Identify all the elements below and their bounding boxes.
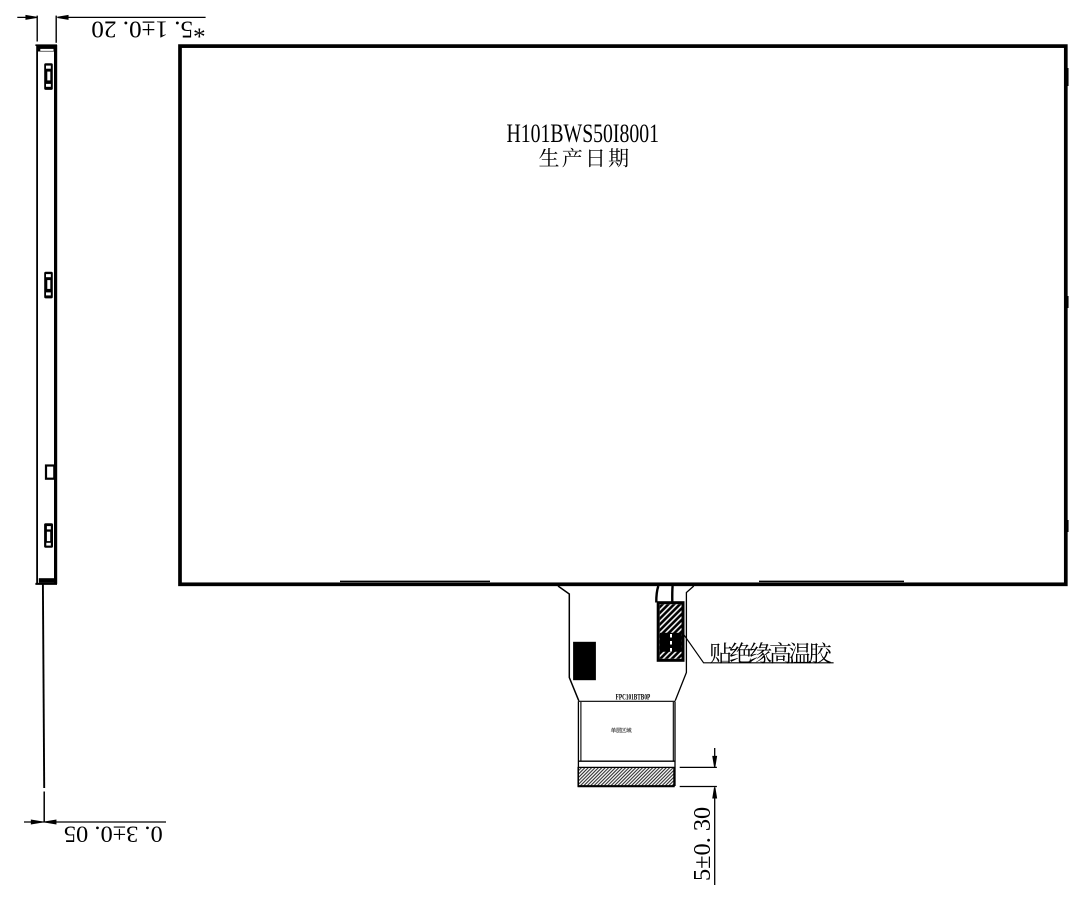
svg-text:0. 3±0. 05: 0. 3±0. 05 (64, 821, 163, 846)
svg-text:*5. 1±0. 20: *5. 1±0. 20 (91, 16, 205, 42)
svg-text:FPC101BTB0P: FPC101BTB0P (616, 693, 651, 701)
svg-text:5±0. 30: 5±0. 30 (689, 807, 716, 881)
svg-text:H101BWS50I8001: H101BWS50I8001 (506, 118, 659, 147)
